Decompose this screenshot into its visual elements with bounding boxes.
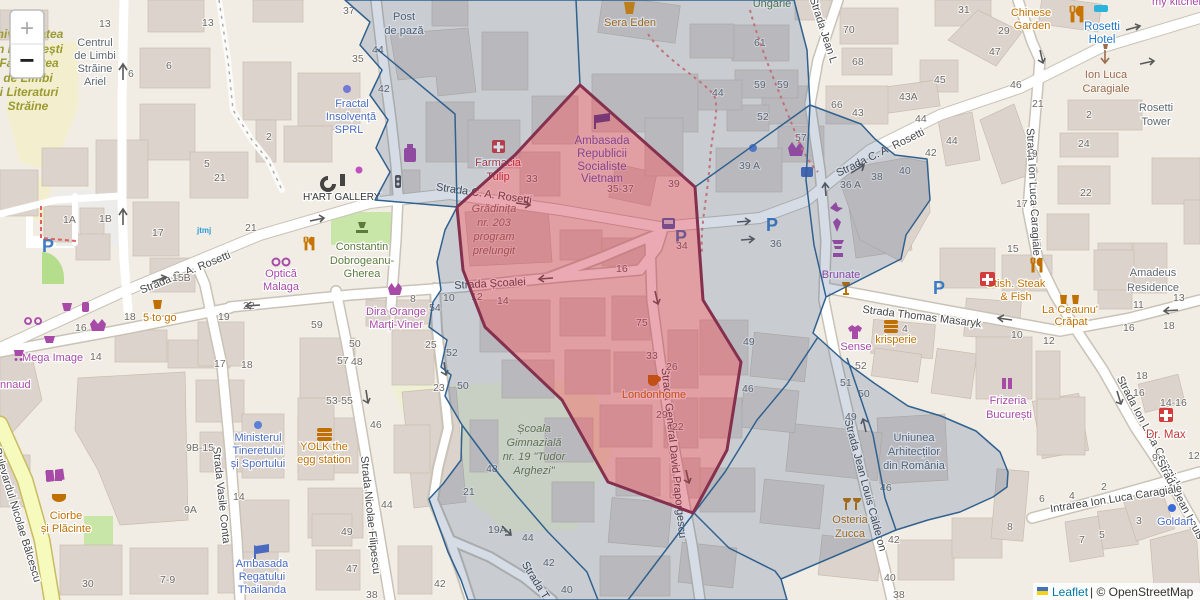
svg-text:Tineretului: Tineretului [233,445,284,457]
svg-text:22: 22 [1080,187,1092,199]
svg-text:−: − [19,45,34,75]
svg-text:70: 70 [843,24,855,36]
svg-text:42: 42 [434,578,446,590]
svg-text:Caragiale: Caragiale [1082,83,1129,95]
svg-text:13: 13 [1173,292,1185,304]
svg-text:Hotel: Hotel [1089,34,1116,46]
svg-text:6: 6 [128,68,134,80]
svg-text:i Literaturi: i Literaturi [0,85,59,99]
svg-text:7: 7 [1079,534,1085,546]
svg-text:47: 47 [989,46,1001,58]
svg-text:44: 44 [915,113,927,125]
svg-text:18: 18 [124,311,136,323]
svg-text:14: 14 [90,351,102,363]
svg-text:Dobrogeanu-: Dobrogeanu- [330,255,395,267]
svg-text:Rosetti: Rosetti [1084,21,1120,33]
svg-text:19: 19 [218,311,230,323]
svg-text:31: 31 [958,4,970,16]
svg-text:8: 8 [1007,521,1013,533]
svg-text:5 to go: 5 to go [143,312,177,324]
svg-text:Frizeria: Frizeria [990,395,1028,407]
svg-text:Thailanda: Thailanda [238,584,287,596]
svg-text:43: 43 [852,107,864,119]
svg-text:46: 46 [370,419,382,431]
svg-text:Ambasada: Ambasada [236,558,289,570]
svg-text:25: 25 [425,339,437,351]
svg-text:48: 48 [351,356,363,368]
svg-text:50: 50 [349,338,361,350]
svg-text:Mega Image: Mega Image [22,352,83,364]
svg-text:6: 6 [1039,493,1045,505]
svg-text:| © OpenStreetMap: | © OpenStreetMap [1090,585,1194,599]
svg-text:Sense: Sense [840,341,871,353]
svg-text:Marți-Viner: Marți-Viner [369,319,423,331]
svg-text:Residence: Residence [1127,282,1179,294]
svg-text:45: 45 [934,74,946,86]
svg-text:Chinese: Chinese [1011,7,1051,19]
svg-text:Rosetti: Rosetti [1139,102,1173,114]
svg-text:15: 15 [1007,243,1019,255]
svg-text:16: 16 [1123,322,1135,334]
svg-text:Fractal: Fractal [335,98,369,110]
svg-text:66: 66 [831,99,843,111]
svg-text:49: 49 [341,526,353,538]
svg-text:35: 35 [352,53,364,65]
svg-text:Tower: Tower [1141,116,1171,128]
svg-text:+: + [20,15,34,42]
svg-text:14: 14 [233,491,245,503]
svg-text:La Ceaunu': La Ceaunu' [1042,304,1098,316]
svg-text:Crăpat: Crăpat [1054,316,1087,328]
svg-text:Regatului: Regatului [239,571,285,583]
svg-text:Optică: Optică [265,268,298,280]
svg-text:15B: 15B [172,272,191,284]
svg-text:Amadeus: Amadeus [1130,267,1177,279]
svg-text:29: 29 [998,25,1010,37]
svg-text:16: 16 [1133,387,1145,399]
svg-text:9A: 9A [184,504,197,516]
svg-text:jtmj: jtmj [196,226,211,235]
svg-text:21: 21 [245,222,257,234]
svg-text:Străine: Străine [78,63,113,75]
svg-text:19: 19 [1026,148,1038,160]
svg-text:3: 3 [1136,515,1142,527]
svg-text:23: 23 [433,382,445,394]
svg-text:Ion Luca: Ion Luca [1085,69,1128,81]
svg-text:38: 38 [366,589,378,600]
svg-text:Ciorbe: Ciorbe [50,510,82,522]
svg-text:14-16: 14-16 [1160,397,1187,409]
svg-text:42: 42 [888,534,900,546]
svg-text:Insolvență: Insolvență [326,111,377,123]
svg-text:Constantin: Constantin [336,241,389,253]
svg-text:57: 57 [337,355,349,367]
svg-text:Dr. Max: Dr. Max [1146,429,1186,441]
svg-text:de Limbi: de Limbi [74,50,116,62]
svg-text:1A: 1A [63,214,76,226]
svg-text:53-55: 53-55 [326,395,353,407]
svg-text:Gherea: Gherea [344,268,382,280]
svg-text:Centrul: Centrul [77,37,112,49]
svg-text:16: 16 [75,322,87,334]
svg-text:Străine: Străine [8,99,49,113]
svg-text:21: 21 [1032,98,1044,110]
svg-text:47: 47 [346,563,358,575]
svg-text:Dira Orange: Dira Orange [366,306,426,318]
svg-text:Leaflet: Leaflet [1052,585,1089,599]
svg-text:13: 13 [99,18,111,30]
svg-text:17: 17 [152,227,164,239]
svg-text:5: 5 [1099,529,1105,541]
svg-text:2: 2 [1086,109,1092,121]
svg-text:4: 4 [902,323,908,335]
svg-text:4: 4 [1069,490,1075,502]
svg-text:18: 18 [1136,370,1148,382]
svg-text:& Fish: & Fish [1000,291,1031,303]
svg-text:București: București [986,409,1032,421]
svg-text:Malaga: Malaga [263,281,300,293]
svg-text:egg station: egg station [297,454,351,466]
svg-text:Ariel: Ariel [84,76,106,88]
svg-text:și Plăcinte: și Plăcinte [41,523,91,535]
svg-text:68: 68 [852,56,864,68]
svg-text:10: 10 [1011,329,1023,341]
svg-text:21: 21 [214,172,226,184]
svg-text:43A: 43A [899,91,918,103]
svg-text:7-9: 7-9 [160,574,175,586]
svg-text:Garden: Garden [1014,20,1051,32]
svg-text:SPRL: SPRL [335,124,364,136]
svg-text:6: 6 [166,60,172,72]
svg-text:2: 2 [266,131,272,143]
svg-text:46: 46 [1010,79,1022,91]
svg-text:9B-15: 9B-15 [186,442,214,454]
svg-text:18: 18 [241,359,253,371]
svg-text:H'ART GALLERY: H'ART GALLERY [303,192,381,203]
svg-text:12: 12 [1188,450,1200,462]
svg-text:11: 11 [1133,299,1144,311]
svg-text:30: 30 [82,578,94,590]
svg-text:59: 59 [311,319,323,331]
svg-text:9: 9 [1152,452,1158,464]
svg-text:YOLK the: YOLK the [300,441,348,453]
svg-text:17: 17 [1016,198,1028,210]
svg-text:18: 18 [1163,320,1175,332]
svg-text:my kitchen: my kitchen [1152,0,1200,8]
svg-text:Ministerul: Ministerul [234,432,281,444]
svg-text:1B: 1B [99,213,112,225]
svg-text:și Sportului: și Sportului [231,458,285,470]
svg-text:44: 44 [946,135,958,147]
svg-text:Goldart: Goldart [1157,516,1193,528]
svg-text:24: 24 [1078,138,1090,150]
svg-text:12: 12 [1043,335,1055,347]
svg-text:2: 2 [1101,481,1107,493]
svg-text:krisperie: krisperie [875,334,917,346]
svg-text:Stish. Steak: Stish. Steak [987,278,1046,290]
svg-text:13: 13 [202,17,214,29]
svg-text:42: 42 [925,147,937,159]
svg-text:40: 40 [884,572,896,584]
svg-text:44: 44 [381,499,393,511]
svg-text:17: 17 [214,358,226,370]
svg-text:P: P [933,278,945,298]
svg-text:8: 8 [410,293,416,305]
svg-text:5: 5 [204,158,210,170]
svg-text:nnaud: nnaud [0,379,31,391]
svg-text:38: 38 [893,589,905,600]
